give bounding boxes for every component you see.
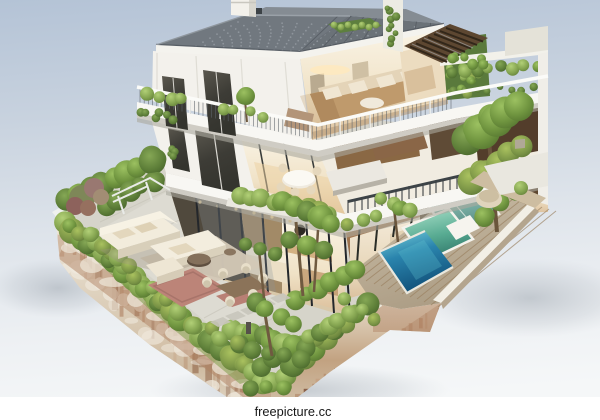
svg-text:freepicture.cc: freepicture.cc xyxy=(255,404,332,419)
